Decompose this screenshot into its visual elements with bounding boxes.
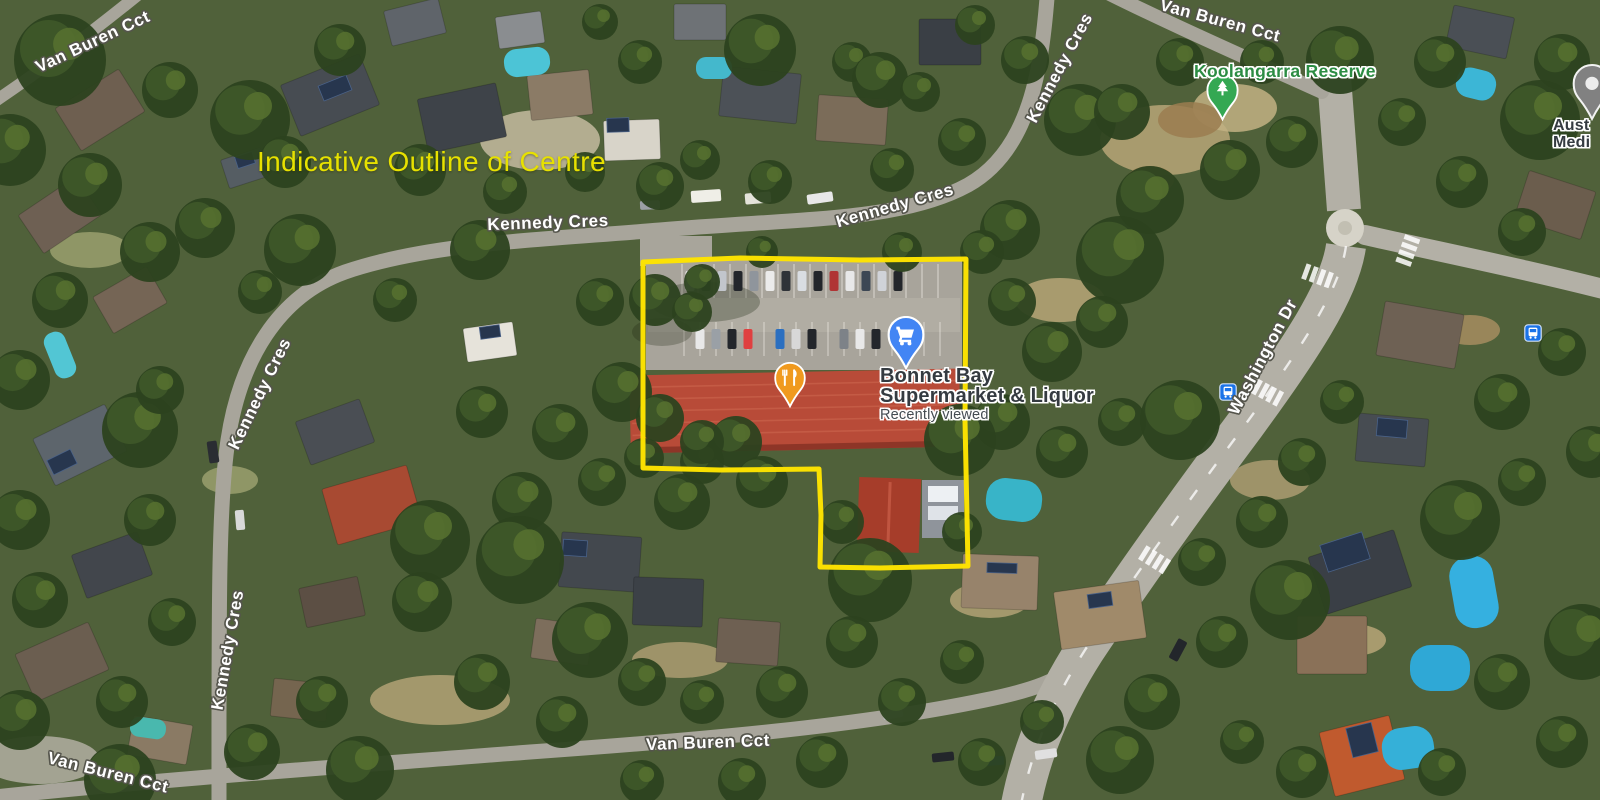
poi-label-supermarket[interactable]: Bonnet Bay Supermarket & Liquor Recently… — [880, 367, 1094, 423]
bus-stop-icon[interactable] — [1524, 324, 1542, 342]
generic-poi-pin[interactable] — [1571, 64, 1600, 121]
poi-supermarket-line2: Supermarket & Liquor — [880, 387, 1094, 407]
map-annotation-heading: Indicative Outline of Centre — [257, 146, 606, 178]
poi-label-koolangarra-reserve[interactable]: Koolangarra Reserve — [1194, 61, 1376, 82]
shopping-cart-pin[interactable] — [886, 316, 926, 370]
pin-hole — [1585, 77, 1598, 90]
poi-label-edge-clipped: Aust Medi — [1553, 118, 1590, 151]
street-label-kennedy-top-center: Kennedy Cres — [487, 211, 609, 235]
aerial-map-view[interactable]: Indicative Outline of Centre Van Buren C… — [0, 0, 1600, 800]
restaurant-pin[interactable] — [773, 362, 807, 408]
poi-supermarket-status: Recently viewed — [880, 407, 1094, 423]
poi-clipped-line1: Aust — [1553, 118, 1590, 135]
poi-supermarket-line1: Bonnet Bay — [880, 367, 1094, 387]
poi-clipped-line2: Medi — [1553, 135, 1590, 152]
